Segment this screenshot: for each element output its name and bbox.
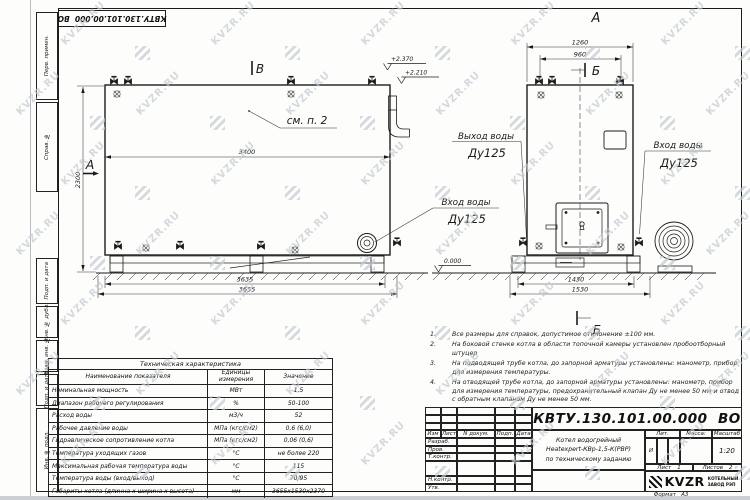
dim-1430: 1430 [568,276,585,284]
svg-text:+2.370: +2.370 [391,56,413,63]
col-izm: Изм [425,430,441,438]
note-text: Все размеры для справок, допустимое откл… [452,331,740,340]
svg-text:Вход воды: Вход воды [653,141,702,151]
svg-text:Вход воды: Вход воды [441,198,490,208]
note-number: 4. [430,379,452,405]
dim-3400: 3400 [239,148,256,156]
side-view-crosshair-icons [110,87,301,256]
section-mark-B-top: В [252,61,264,76]
lit-value: И [645,438,657,464]
kvzr-logo-text: KVZR [665,474,705,489]
dim-960: 960 [574,51,586,59]
row-tkontr: Т.контр. [425,453,457,461]
title-block: Изм Лист N докум. Подп. Дата Разраб. Про… [425,407,742,492]
doc-number: КВТУ.130.101.00.000 ВО [532,407,742,430]
col-header-name: Наименование показателя [49,370,208,385]
table-row: Габариты котла (длинна х ширина х высота… [49,485,332,498]
svg-text:+2.210: +2.210 [405,70,427,77]
dim-1260: 1260 [572,39,589,47]
table-title: Техническая характеристика [49,359,332,370]
dim-1530: 1530 [572,286,589,294]
company-logo-cell: KVZR КОТЕЛЬНЫЙ ЗАВОД РЭП [645,471,742,492]
mass-label: Масса: [680,430,712,438]
side-view-valve-icons [111,77,401,249]
table-row: Номинальная мощностьМВт1,5 [49,385,332,398]
technical-characteristics-table: Техническая характеристика Наименование … [48,358,333,497]
table-row: Рабочее давление водыМПа (кгс/см2)0,6 (6… [49,423,332,436]
scale-value: 1:20 [712,438,742,464]
view-label-A: А [591,11,601,26]
scale-label: Масштаб [712,430,742,438]
row-razrab: Разраб. [425,438,457,446]
note-item: 1. Все размеры для справок, допустимое о… [430,331,740,340]
lit-label: Лит. [645,430,680,438]
table-row: Расход водым3/ч52 [49,410,332,423]
table-header-row: Наименование показателя Единицы измерени… [49,370,332,385]
note-item: 3. На подводящей трубе котла, до запорно… [430,360,740,377]
section-mark-A-left: А [83,157,99,176]
format-note: Формат А3 [600,492,742,498]
col-header-value: Значение [265,370,332,385]
kvzr-logo-icon [649,476,662,488]
table-row: Максимальная рабочая температура воды°С1… [49,460,332,473]
product-title: Котел водогрейный Heatexpert-КВр-1,5-К(Р… [532,430,645,470]
svg-text:Ду125: Ду125 [467,146,506,160]
dim-3655: 3655 [239,286,256,294]
dim-2300: 2300 [74,172,82,189]
sheets-cell: Листов2 [693,464,742,471]
front-inlet-label: Вход воды Ду125 [640,141,712,234]
col-sign: Подп. [495,430,515,438]
svg-text:Ду125: Ду125 [659,156,698,170]
note-text: На боковой стенке котла в области топочн… [452,341,740,358]
dim-3635: 3635 [237,276,254,284]
note-number: 2. [430,341,452,358]
notes-list: 1. Все размеры для справок, допустимое о… [430,331,740,407]
svg-text:см. п. 2: см. п. 2 [287,115,328,127]
col-date: Дата [515,430,532,438]
note-text: На подводящей трубе котла, до запорной а… [452,360,740,377]
col-list: Лист [441,430,457,438]
ground-line-left [93,273,428,280]
table-row: Температура воды (вход/выход)°С70/95 [49,473,332,486]
col-doc: N докум. [457,430,495,438]
drawing-sheet: Перв. примен. Справ. № Подп. и дата Инв.… [0,0,750,500]
svg-text:В: В [256,62,264,76]
boiler-front-view [512,68,693,272]
elevation-mark-2210: +2.210 [398,70,440,84]
svg-text:Ду125: Ду125 [447,212,486,226]
row-prov: Пров. [425,446,457,453]
row-nkontr: Н.контр. [425,476,457,484]
elevation-mark-0000: 0.000 [435,258,472,272]
note-item: 4. На отводящей трубе котла, до запорной… [430,379,740,405]
col-header-units: Единицы измерения [208,370,265,385]
svg-text:Б: Б [592,64,600,78]
svg-text:Выход воды: Выход воды [458,132,514,142]
elevation-mark-2370: +2.370 [384,56,427,70]
callout-see-note-2: см. п. 2 [248,110,337,128]
section-mark-B-front-top: Б [571,63,600,78]
svg-text:0.000: 0.000 [444,258,461,265]
company-name: КОТЕЛЬНЫЙ ЗАВОД РЭП [708,476,739,487]
row-utv: Утв. [425,484,457,492]
note-text: На отводящей трубе котла, до запорной ар… [452,379,740,405]
note-number: 1. [430,331,452,340]
table-row: Диапазон рабочего регулирования%50-100 [49,398,332,411]
svg-text:А: А [85,157,95,172]
side-view-dimensions [77,86,397,298]
note-number: 3. [430,360,452,377]
table-row: Гидравлическое сопротивление котлаМПа (к… [49,435,332,448]
table-row: Температура уходящих газов°Сне более 220 [49,448,332,461]
sheet-cell: Лист1 [645,464,693,471]
note-item: 2. На боковой стенке котла в области топ… [430,341,740,358]
front-view-valve-icons [520,77,643,246]
side-inlet-label: Вход воды Ду125 [375,198,499,242]
